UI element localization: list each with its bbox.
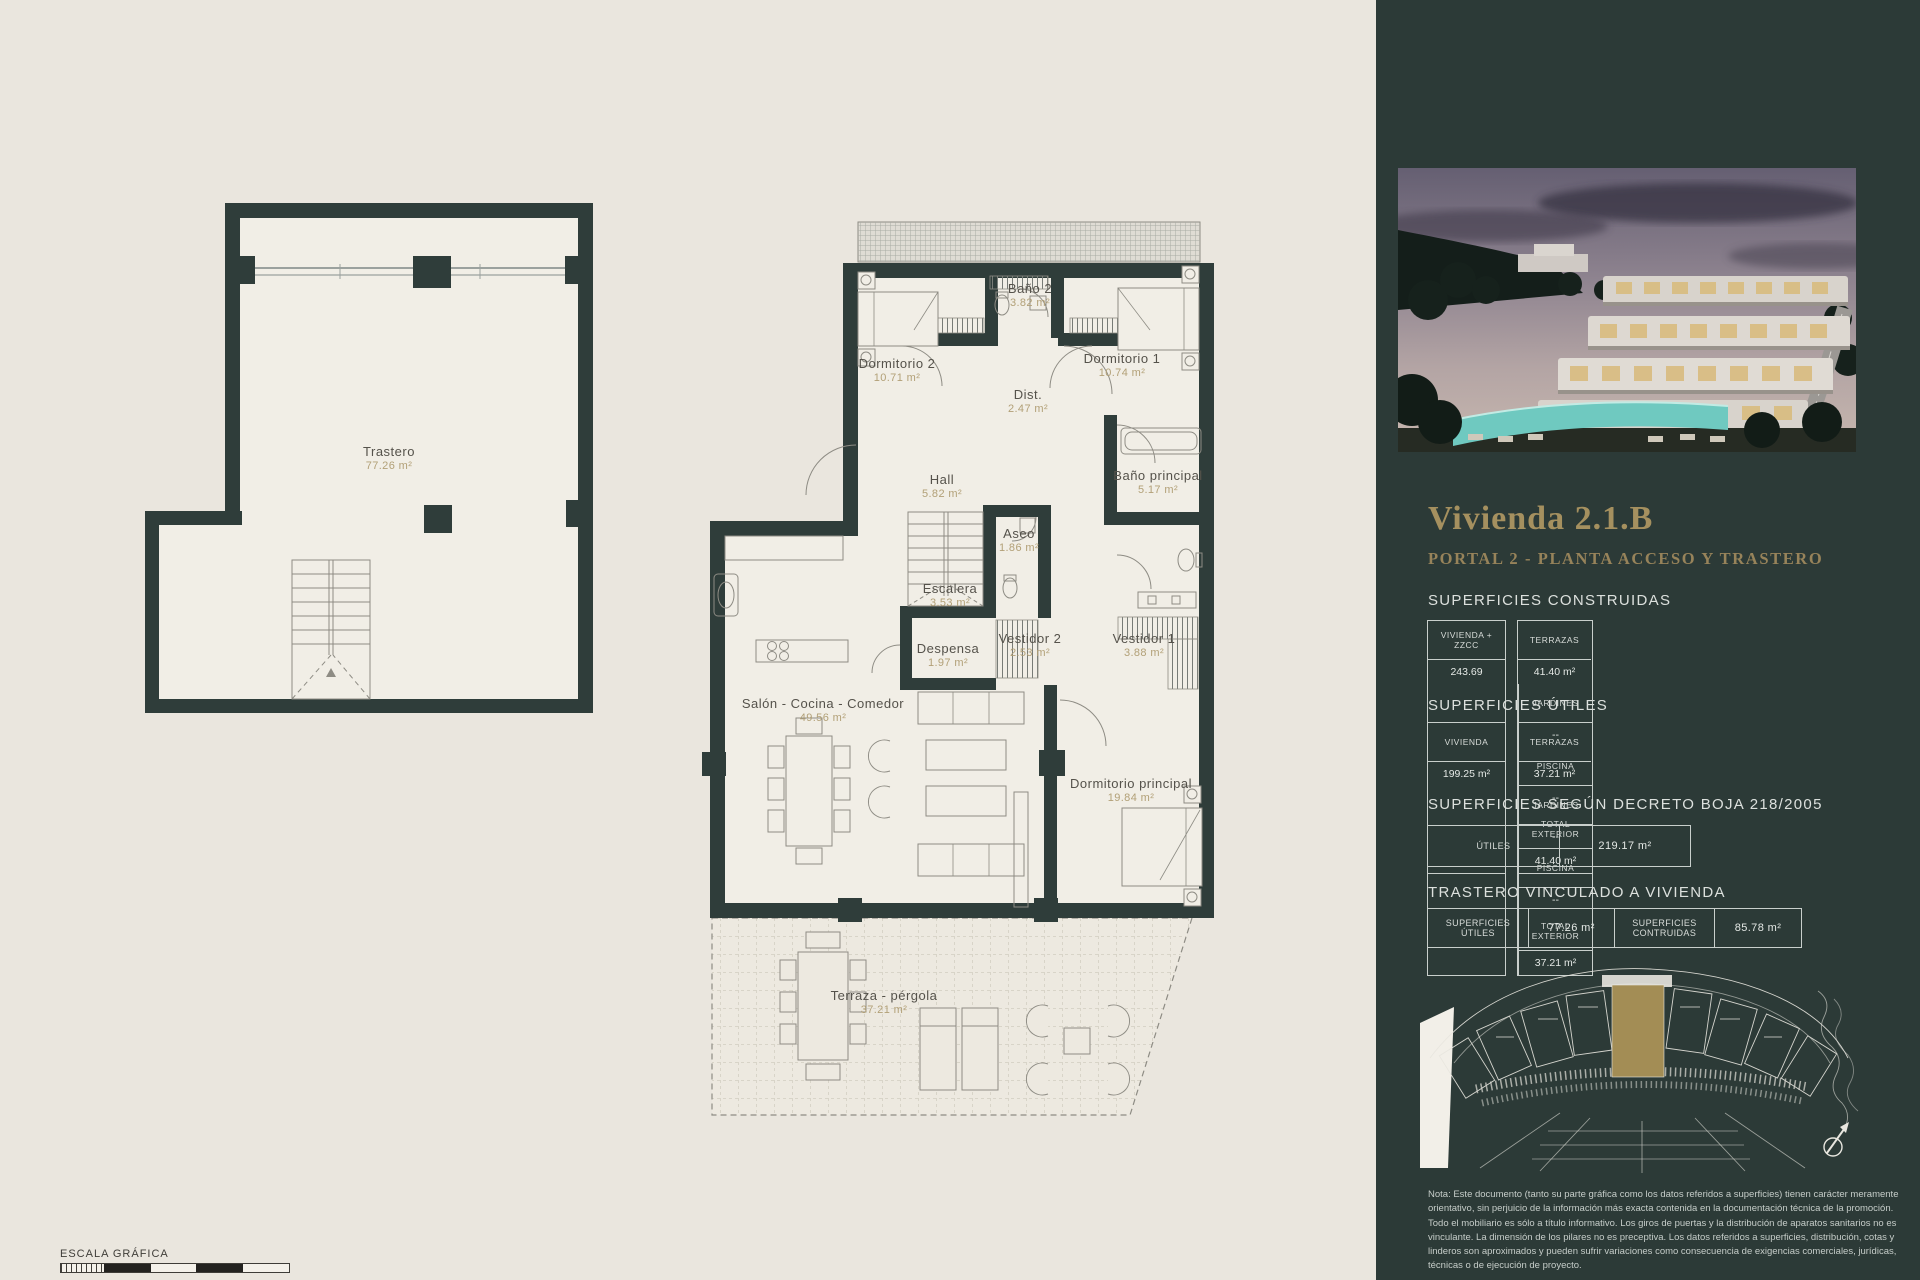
table-value: 243.69 [1428, 659, 1505, 684]
heading-decreto: SUPERFICIES SEGÚN DECRETO BOJA 218/2005 [1428, 796, 1823, 813]
heading-trastero-vinculado: TRASTERO VINCULADO A VIVIENDA [1428, 884, 1726, 901]
scale-bar-label: ESCALA GRÁFICA [60, 1248, 290, 1260]
legal-note: Nota: Este documento (tanto su parte grá… [1428, 1188, 1902, 1274]
highlighted-unit [1612, 985, 1664, 1077]
compass-icon [1824, 1122, 1849, 1156]
unit-subtitle: PORTAL 2 - PLANTA ACCESO Y TRASTERO [1428, 549, 1823, 569]
trastero-plan [145, 203, 593, 713]
hero-photo-art [1398, 168, 1856, 452]
table-header: VIVIENDA + ZZCC [1428, 621, 1505, 659]
terrace-area [712, 918, 1192, 1115]
site-plan-art [1420, 963, 1860, 1178]
floorplan-drawing [0, 0, 1376, 1280]
site-plan-wedge [1420, 1007, 1454, 1168]
table-decreto: ÚTILES 219.17 m² [1427, 825, 1691, 867]
scale-bar: ESCALA GRÁFICA [60, 1248, 290, 1273]
scale-bar-graphic [60, 1263, 290, 1273]
heading-superficies-construidas: SUPERFICIES CONSTRUIDAS [1428, 592, 1671, 609]
sidebar: Vivienda 2.1.B PORTAL 2 - PLANTA ACCESO … [1376, 0, 1920, 1280]
heading-superficies-utiles: SUPERFICIES ÚTILES [1428, 697, 1608, 714]
table-trastero-vinculado: SUPERFICIES ÚTILES 77.26 m² SUPERFICIES … [1427, 908, 1802, 948]
brochure-page: Trastero 77.26 m² Dormitorio 2 10.71 m² … [0, 0, 1920, 1280]
hero-photo [1398, 168, 1856, 452]
site-plan [1420, 963, 1860, 1183]
unit-title: Vivienda 2.1.B [1428, 500, 1653, 538]
main-plan [702, 222, 1214, 1115]
